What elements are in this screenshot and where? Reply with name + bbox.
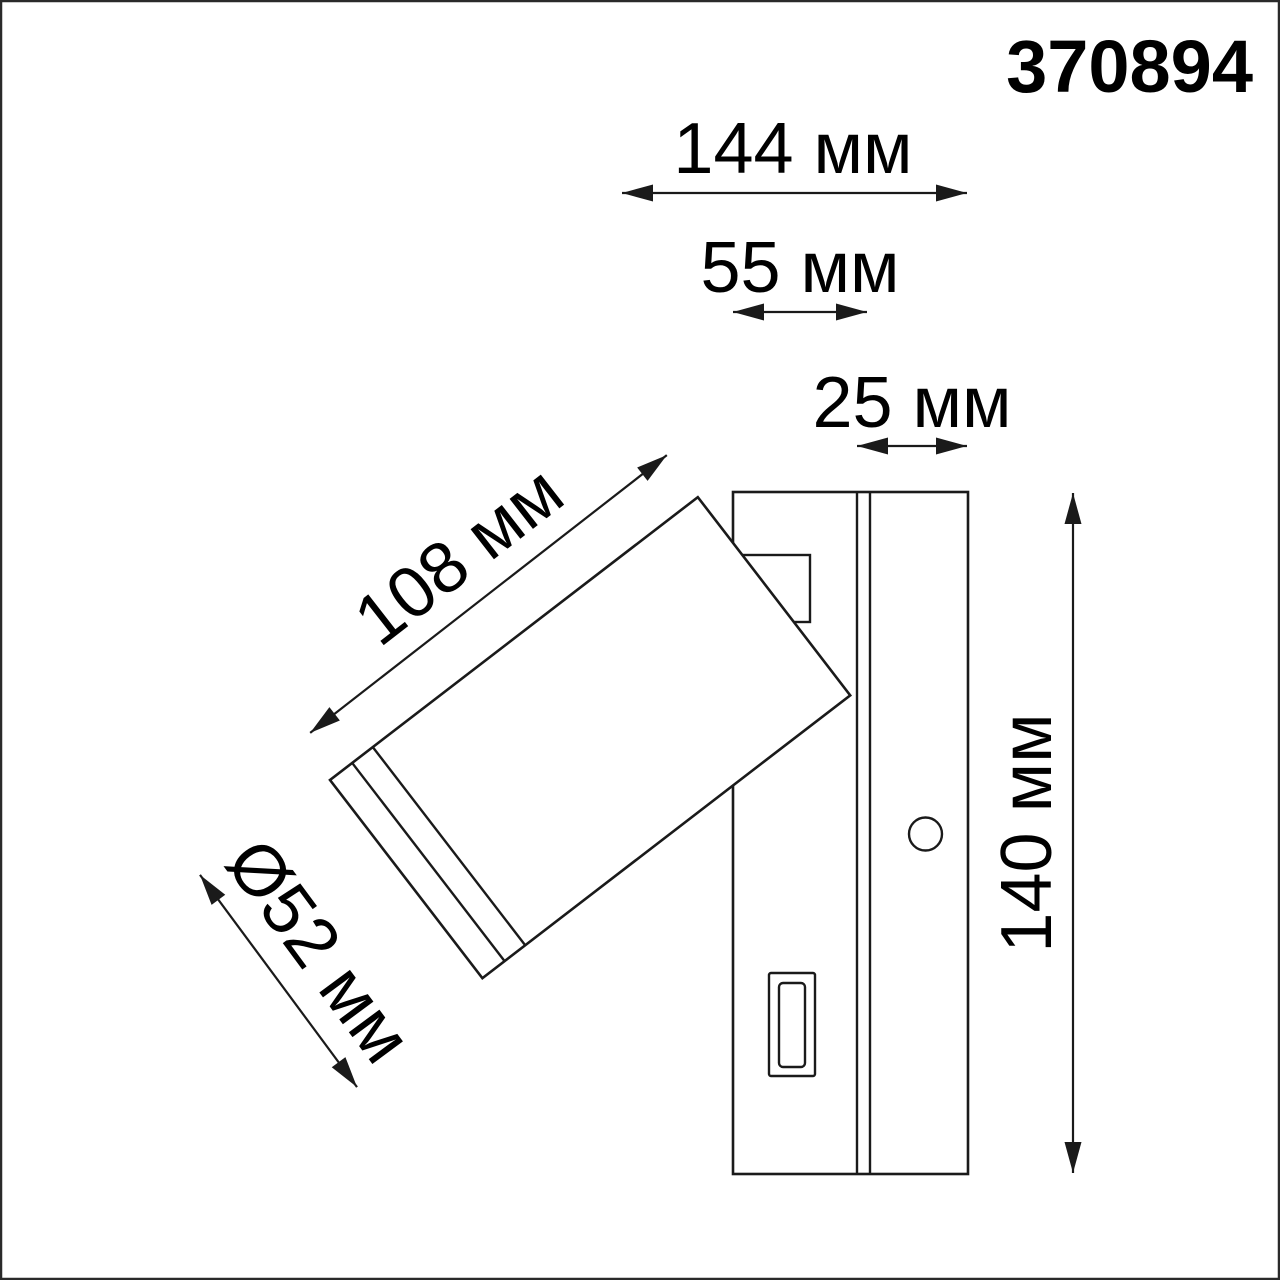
switch-outer-frame [769,973,815,1076]
wall-lamp-dimension-drawing: 144 мм 55 мм 25 мм 108 мм Ø52 мм 140 мм [0,0,1280,1280]
article-number: 370894 [1006,25,1253,108]
dimension-total-width: 144 мм [622,109,967,193]
dimension-label: 55 мм [700,228,899,308]
dimension-label: 144 мм [673,109,912,189]
dimension-label: 25 мм [812,363,1011,443]
mounting-hole [909,818,942,851]
technical-drawing-page: 144 мм 55 мм 25 мм 108 мм Ø52 мм 140 мм [0,0,1280,1280]
dimension-label: 140 мм [987,713,1067,952]
dimension-backplate-thickness: 25 мм [812,363,1011,446]
dimension-height: 140 мм [987,493,1073,1173]
dimension-backplate-width: 55 мм [700,228,899,312]
switch-rocker [779,983,805,1067]
power-switch [769,973,815,1076]
